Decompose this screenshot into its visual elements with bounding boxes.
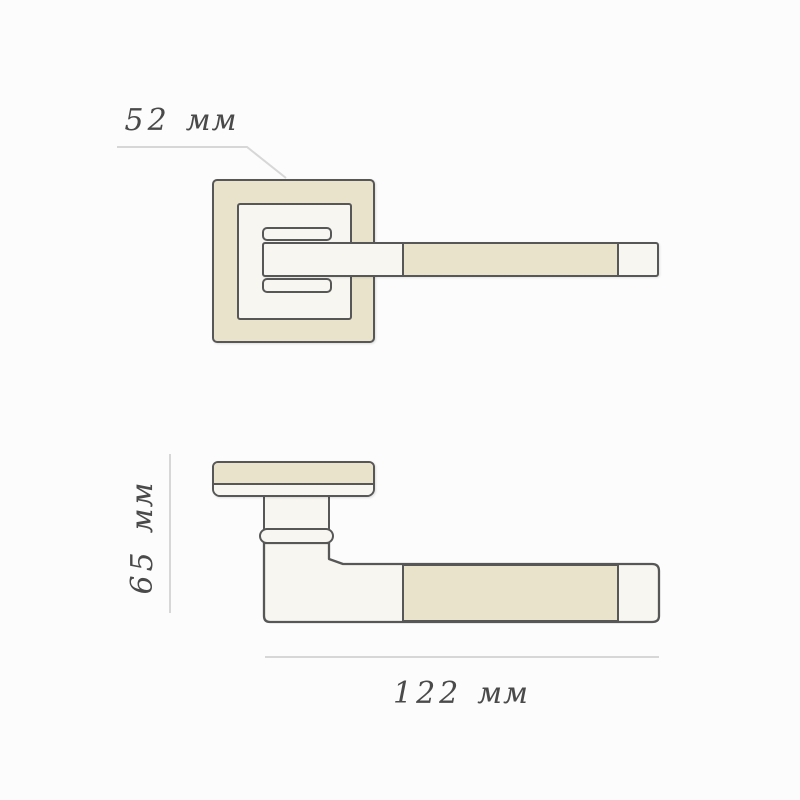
handle-front-lever [262, 242, 659, 277]
rosette-side-bar [212, 461, 375, 497]
handle-side-neck [263, 495, 330, 531]
height-dimension-unit: мм [125, 482, 160, 534]
width-dimension-label: 52мм [125, 106, 238, 136]
height-dimension-value: 65 [125, 548, 160, 594]
rosette-side-base [214, 485, 373, 495]
diagram-canvas: 52мм 65мм 122мм [0, 0, 800, 800]
handle-side-collar [259, 528, 334, 544]
width-dimension-unit: мм [186, 103, 238, 138]
handle-front-arm-bottom [262, 278, 332, 293]
width-dimension-value: 52 [125, 103, 171, 138]
width-leader-line [117, 147, 286, 178]
lever-neck-segment [264, 244, 402, 275]
length-dimension-label: 122мм [393, 679, 529, 709]
length-dimension-unit: мм [477, 676, 529, 711]
height-dimension-label: 65мм [128, 482, 158, 595]
handle-front-arm-top [262, 227, 332, 241]
lever-cap-segment [619, 244, 657, 275]
handle-side-grip [403, 565, 618, 621]
rosette-side-face [214, 463, 373, 485]
length-dimension-value: 122 [393, 676, 462, 711]
lever-grip-segment [402, 244, 619, 275]
